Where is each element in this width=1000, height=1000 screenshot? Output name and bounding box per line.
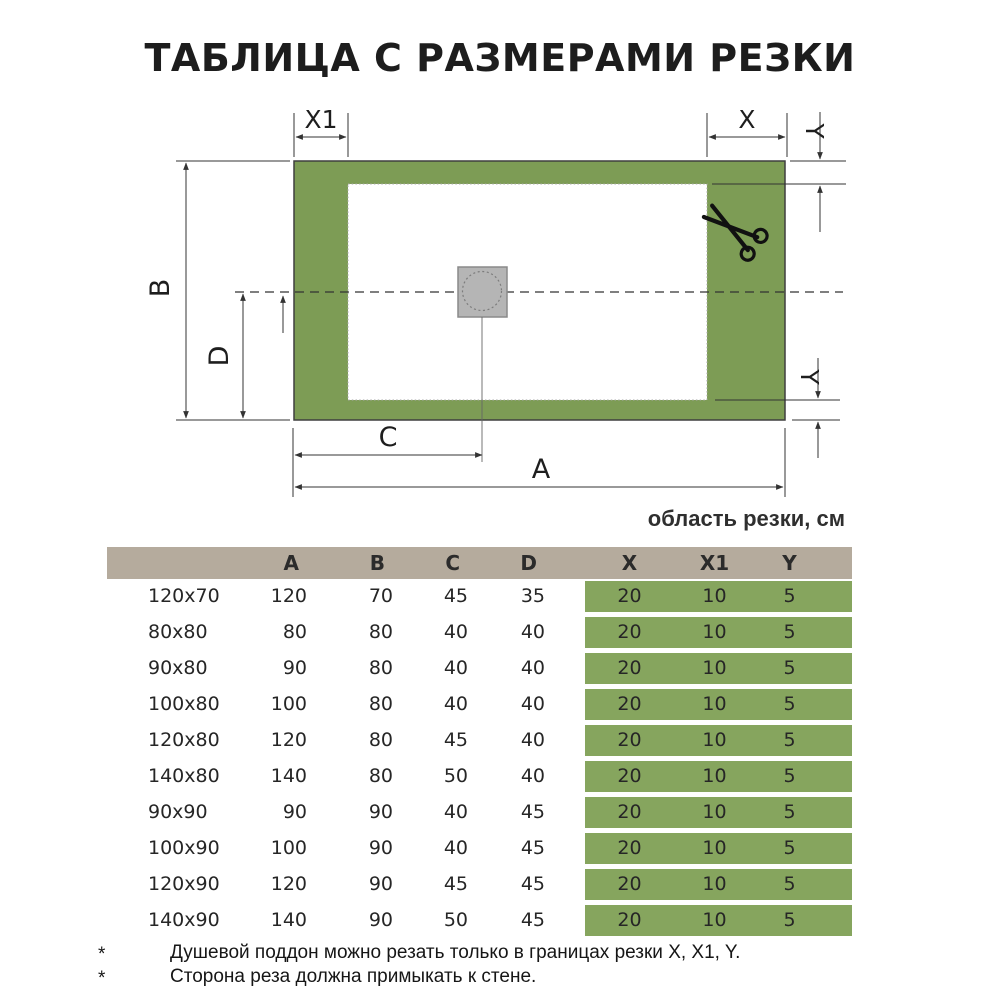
cell-d: 40 — [468, 761, 545, 792]
cell-size: 100x80 — [107, 689, 225, 720]
cell-x1: 10 — [674, 761, 755, 792]
cell-c: 40 — [393, 797, 468, 828]
cell-x1: 10 — [674, 581, 755, 612]
cell-x1: 10 — [674, 617, 755, 648]
cell-b: 80 — [307, 725, 393, 756]
cell-d: 45 — [468, 797, 545, 828]
cell-x1: 10 — [674, 725, 755, 756]
cell-b: 80 — [307, 761, 393, 792]
footnotes: *Душевой поддон можно резать только в гр… — [98, 941, 958, 989]
footnote-marker: * — [98, 943, 105, 967]
cell-y: 5 — [755, 761, 852, 792]
table-row: 100x8010080404020105 — [107, 689, 852, 720]
cell-x1: 10 — [674, 905, 755, 936]
cell-spacer — [545, 689, 585, 720]
cell-x: 20 — [585, 833, 674, 864]
cell-x: 20 — [585, 797, 674, 828]
cell-x: 20 — [585, 581, 674, 612]
cell-b: 80 — [307, 653, 393, 684]
footnote-text: Душевой поддон можно резать только в гра… — [170, 941, 958, 965]
label-y-bottom: Y — [795, 368, 824, 385]
cut-area-caption: область резки, см — [600, 506, 845, 532]
cell-a: 90 — [225, 797, 307, 828]
cell-spacer — [545, 833, 585, 864]
cell-a: 100 — [225, 689, 307, 720]
header-cell-spacer — [545, 547, 585, 579]
cell-y: 5 — [755, 581, 852, 612]
cell-y: 5 — [755, 905, 852, 936]
cell-y: 5 — [755, 797, 852, 828]
cell-x1: 10 — [674, 689, 755, 720]
cell-a: 90 — [225, 653, 307, 684]
cell-x1: 10 — [674, 797, 755, 828]
cell-a: 120 — [225, 869, 307, 900]
cell-size: 140x80 — [107, 761, 225, 792]
cell-a: 140 — [225, 761, 307, 792]
cell-c: 40 — [393, 833, 468, 864]
cell-a: 80 — [225, 617, 307, 648]
cell-x: 20 — [585, 689, 674, 720]
cell-size: 140x90 — [107, 905, 225, 936]
cell-size: 120x70 — [107, 581, 225, 612]
footnote-line: *Сторона реза должна примыкать к стене. — [98, 965, 958, 989]
cell-spacer — [545, 905, 585, 936]
cell-spacer — [545, 761, 585, 792]
cell-spacer — [545, 617, 585, 648]
cell-size: 90x90 — [107, 797, 225, 828]
header-cell-a: A — [225, 547, 307, 579]
cell-spacer — [545, 581, 585, 612]
tray-cutting-diagram: X1 X Y Y B D C A — [0, 0, 1000, 505]
cell-x: 20 — [585, 653, 674, 684]
cell-x: 20 — [585, 617, 674, 648]
header-cell-c: C — [393, 547, 468, 579]
table-row: 140x8014080504020105 — [107, 761, 852, 792]
cell-b: 90 — [307, 905, 393, 936]
label-x1: X1 — [304, 105, 337, 134]
cell-x: 20 — [585, 761, 674, 792]
cell-d: 35 — [468, 581, 545, 612]
cell-y: 5 — [755, 689, 852, 720]
size-table-body: 120x701207045352010580x80808040402010590… — [107, 581, 852, 936]
cell-size: 120x80 — [107, 725, 225, 756]
cell-b: 90 — [307, 797, 393, 828]
label-d: D — [204, 346, 235, 367]
label-c: C — [379, 422, 398, 453]
cell-spacer — [545, 653, 585, 684]
cell-c: 45 — [393, 725, 468, 756]
cell-y: 5 — [755, 725, 852, 756]
cell-d: 45 — [468, 833, 545, 864]
cell-d: 40 — [468, 689, 545, 720]
cell-x1: 10 — [674, 653, 755, 684]
cell-y: 5 — [755, 869, 852, 900]
cell-c: 40 — [393, 653, 468, 684]
cell-d: 45 — [468, 905, 545, 936]
cell-x1: 10 — [674, 833, 755, 864]
table-row: 90x909090404520105 — [107, 797, 852, 828]
label-a: A — [532, 454, 551, 485]
header-cell-size — [107, 547, 225, 579]
cell-b: 90 — [307, 869, 393, 900]
label-x: X — [738, 105, 755, 134]
drain-square — [458, 267, 507, 317]
cell-spacer — [545, 797, 585, 828]
cell-b: 80 — [307, 617, 393, 648]
cell-c: 40 — [393, 617, 468, 648]
cell-y: 5 — [755, 653, 852, 684]
cell-c: 40 — [393, 689, 468, 720]
cell-b: 90 — [307, 833, 393, 864]
cell-spacer — [545, 869, 585, 900]
cell-x: 20 — [585, 869, 674, 900]
cell-c: 45 — [393, 869, 468, 900]
cell-size: 90x80 — [107, 653, 225, 684]
cell-b: 80 — [307, 689, 393, 720]
table-row: 120x8012080454020105 — [107, 725, 852, 756]
cell-a: 100 — [225, 833, 307, 864]
header-cell-b: B — [307, 547, 393, 579]
cell-d: 40 — [468, 653, 545, 684]
cell-a: 120 — [225, 725, 307, 756]
header-cell-x: X — [585, 547, 674, 579]
label-y-top: Y — [800, 122, 829, 139]
dimension-d — [243, 294, 283, 418]
table-row: 90x809080404020105 — [107, 653, 852, 684]
table-row: 140x9014090504520105 — [107, 905, 852, 936]
header-cell-d: D — [468, 547, 545, 579]
cell-a: 120 — [225, 581, 307, 612]
cell-size: 80x80 — [107, 617, 225, 648]
cell-d: 45 — [468, 869, 545, 900]
table-row: 120x9012090454520105 — [107, 869, 852, 900]
cell-c: 45 — [393, 581, 468, 612]
cell-size: 120x90 — [107, 869, 225, 900]
cell-c: 50 — [393, 761, 468, 792]
dimension-b — [176, 161, 290, 420]
footnote-line: *Душевой поддон можно резать только в гр… — [98, 941, 958, 965]
cell-spacer — [545, 725, 585, 756]
table-row: 120x7012070453520105 — [107, 581, 852, 612]
label-b: B — [145, 279, 176, 298]
header-cell-y: Y — [755, 547, 852, 579]
size-table: ABCDXX1Y 120x701207045352010580x80808040… — [107, 547, 852, 941]
cell-y: 5 — [755, 833, 852, 864]
footnote-text: Сторона реза должна примыкать к стене. — [170, 965, 958, 989]
cell-x: 20 — [585, 725, 674, 756]
table-row: 100x9010090404520105 — [107, 833, 852, 864]
cell-b: 70 — [307, 581, 393, 612]
cell-size: 100x90 — [107, 833, 225, 864]
cell-x1: 10 — [674, 869, 755, 900]
size-table-header: ABCDXX1Y — [107, 547, 852, 579]
table-row: 80x808080404020105 — [107, 617, 852, 648]
cell-c: 50 — [393, 905, 468, 936]
header-cell-x1: X1 — [674, 547, 755, 579]
cell-y: 5 — [755, 617, 852, 648]
cell-d: 40 — [468, 725, 545, 756]
cell-a: 140 — [225, 905, 307, 936]
cell-x: 20 — [585, 905, 674, 936]
cell-d: 40 — [468, 617, 545, 648]
footnote-marker: * — [98, 967, 105, 991]
